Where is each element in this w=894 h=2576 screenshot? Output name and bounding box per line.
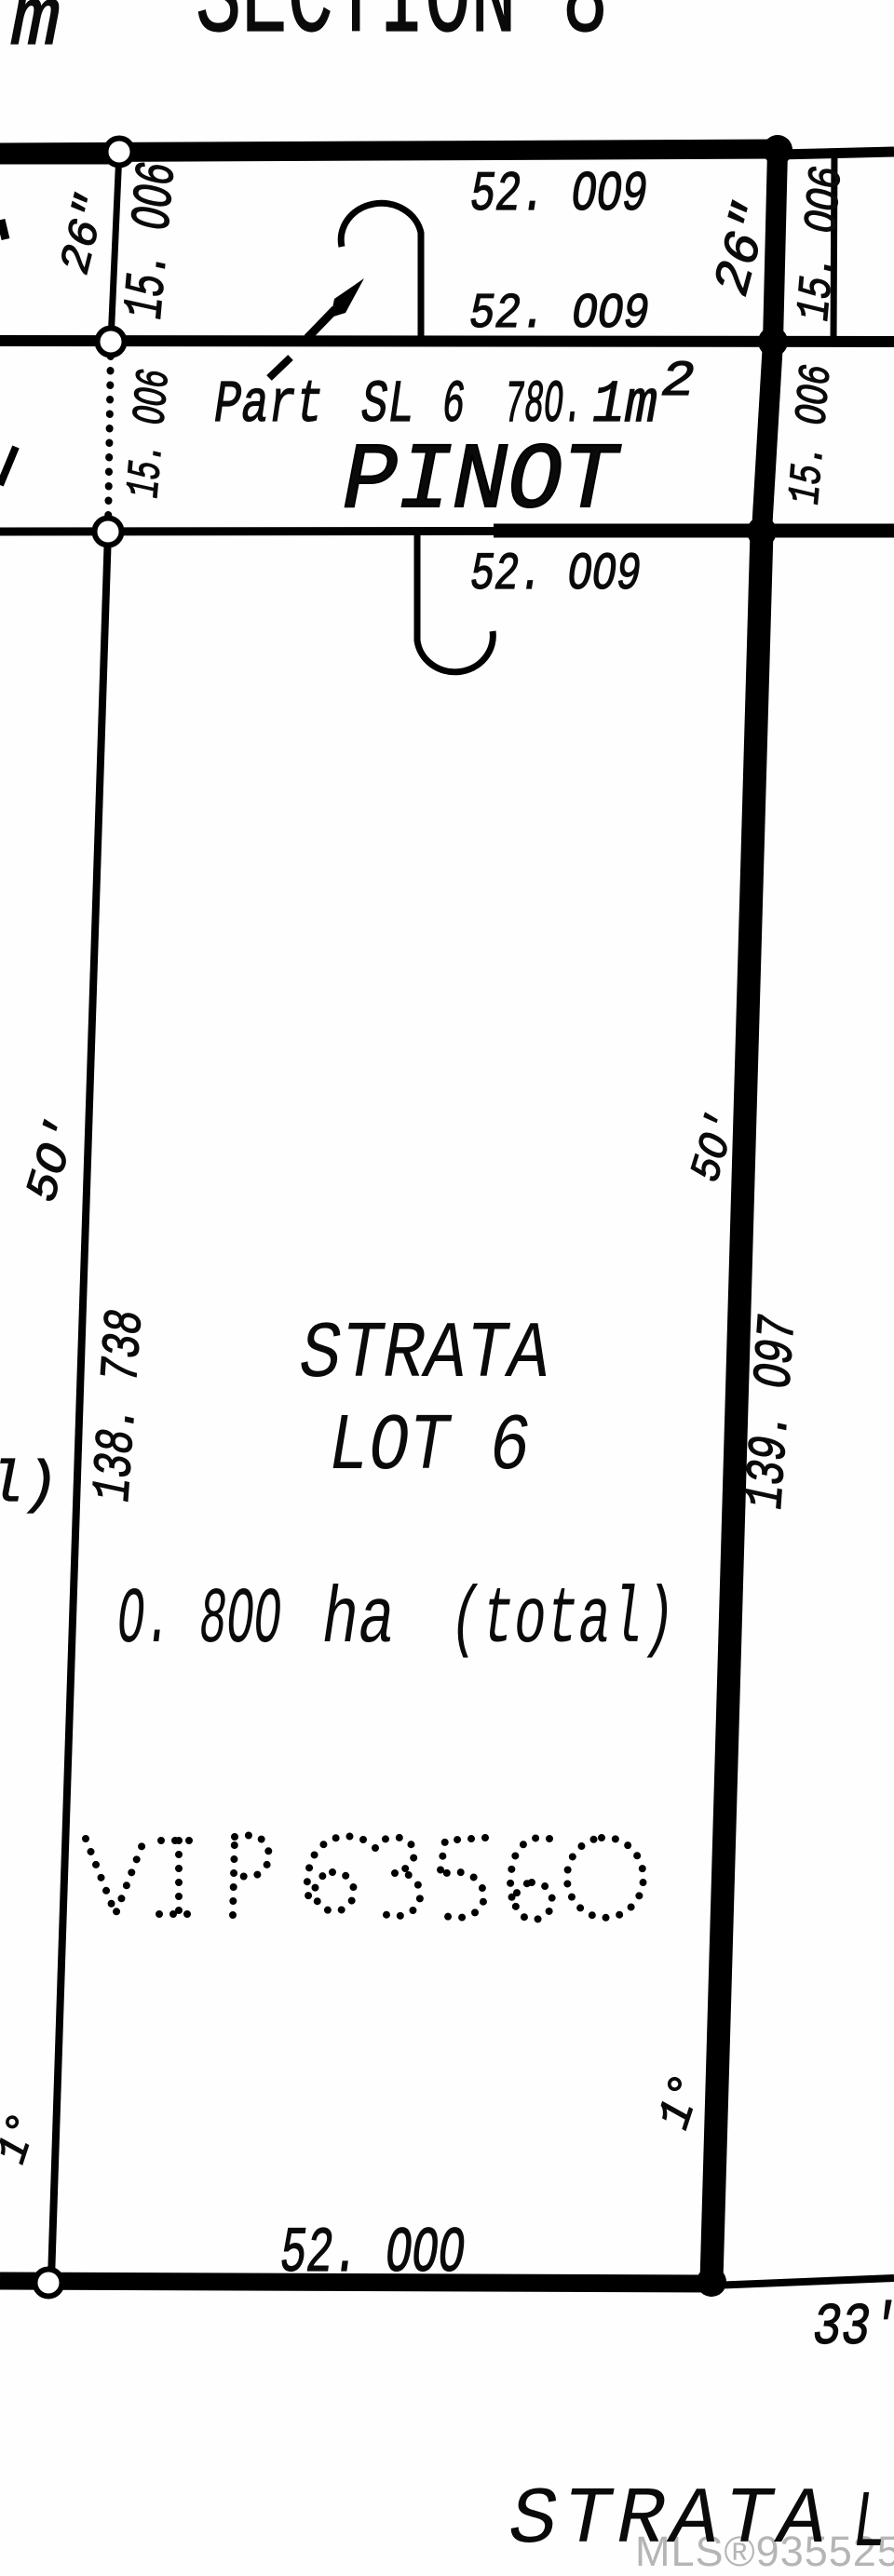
svg-text:2: 2 [661, 354, 695, 411]
svg-text:SECTION 8: SECTION 8 [196, 0, 608, 65]
svg-text:33′: 33′ [813, 2295, 894, 2361]
svg-text:(total): (total) [450, 1575, 675, 1666]
svg-text:m: m [11, 0, 61, 69]
svg-text:PINOT: PINOT [343, 430, 621, 535]
svg-text:15. OO6: 15. OO6 [118, 368, 183, 500]
svg-text:52. OO9: 52. OO9 [469, 286, 649, 342]
svg-text:LOT 6: LOT 6 [329, 1401, 530, 1492]
svg-text:52. OOO: 52. OOO [280, 2218, 465, 2290]
svg-text:O. 8OO: O. 8OO [117, 1575, 281, 1666]
svg-text:L: L [853, 2478, 887, 2569]
svg-text:l): l) [0, 1452, 58, 1518]
svg-text:52. OO9: 52. OO9 [470, 546, 641, 605]
svg-text:ha: ha [322, 1575, 395, 1666]
svg-text:52. OO9: 52. OO9 [470, 164, 647, 227]
svg-text:STRATA: STRATA [300, 1309, 549, 1400]
svg-text:Part: Part [214, 372, 323, 439]
